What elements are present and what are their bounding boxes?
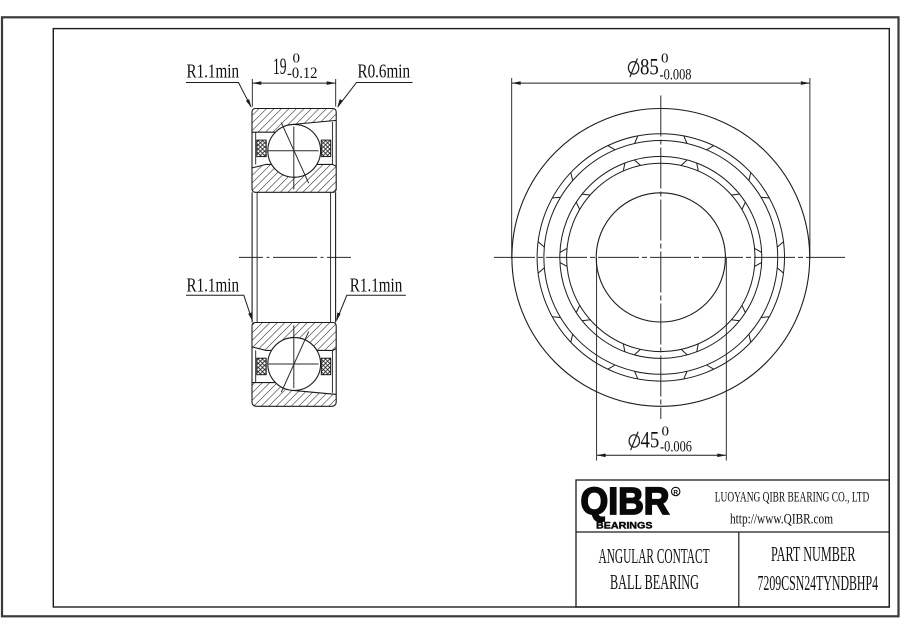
svg-text:R1.1min: R1.1min bbox=[350, 275, 403, 297]
svg-text:0: 0 bbox=[661, 52, 669, 67]
svg-text:-0.008: -0.008 bbox=[660, 66, 692, 83]
svg-text:PART NUMBER: PART NUMBER bbox=[771, 542, 856, 566]
svg-text:http://www.QIBR.com: http://www.QIBR.com bbox=[730, 512, 834, 528]
svg-text:LUOYANG QIBR BEARING CO., LTD: LUOYANG QIBR BEARING CO., LTD bbox=[715, 490, 870, 506]
svg-text:BALL BEARING: BALL BEARING bbox=[610, 570, 699, 594]
svg-text:R1.1min: R1.1min bbox=[187, 275, 240, 297]
svg-text:-0.12: -0.12 bbox=[287, 65, 318, 82]
svg-text:7209CSN24TYNDBHP4: 7209CSN24TYNDBHP4 bbox=[758, 571, 879, 595]
svg-text:R: R bbox=[673, 490, 678, 497]
svg-text:QIBR: QIBR bbox=[581, 481, 670, 523]
svg-text:45: 45 bbox=[641, 427, 660, 452]
svg-text:R1.1min: R1.1min bbox=[187, 61, 240, 83]
svg-text:BEARINGS: BEARINGS bbox=[596, 521, 653, 532]
svg-text:-0.006: -0.006 bbox=[660, 439, 692, 456]
svg-text:19: 19 bbox=[273, 54, 287, 79]
svg-text:85: 85 bbox=[640, 54, 659, 79]
svg-text:0: 0 bbox=[662, 425, 670, 440]
svg-text:R0.6min: R0.6min bbox=[358, 61, 411, 83]
svg-text:ANGULAR CONTACT: ANGULAR CONTACT bbox=[599, 544, 710, 568]
